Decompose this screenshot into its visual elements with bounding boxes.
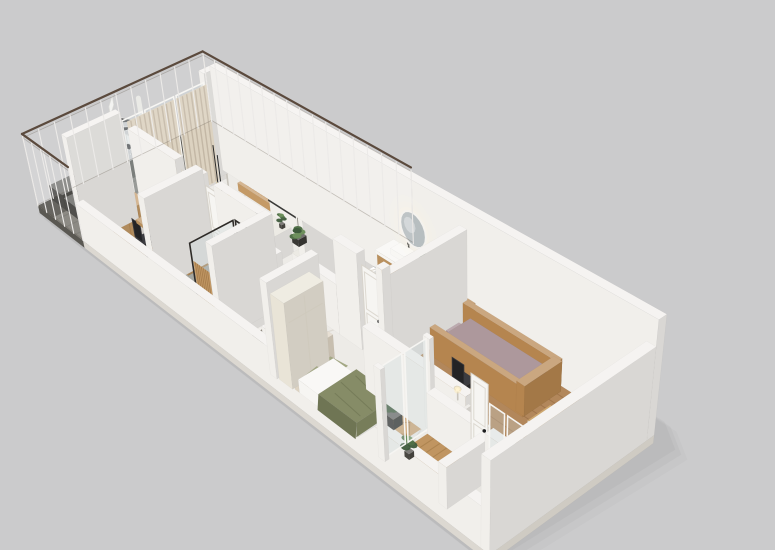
apartment-3d-floorplan [0,0,775,550]
floorplan-render-svg [0,0,775,550]
